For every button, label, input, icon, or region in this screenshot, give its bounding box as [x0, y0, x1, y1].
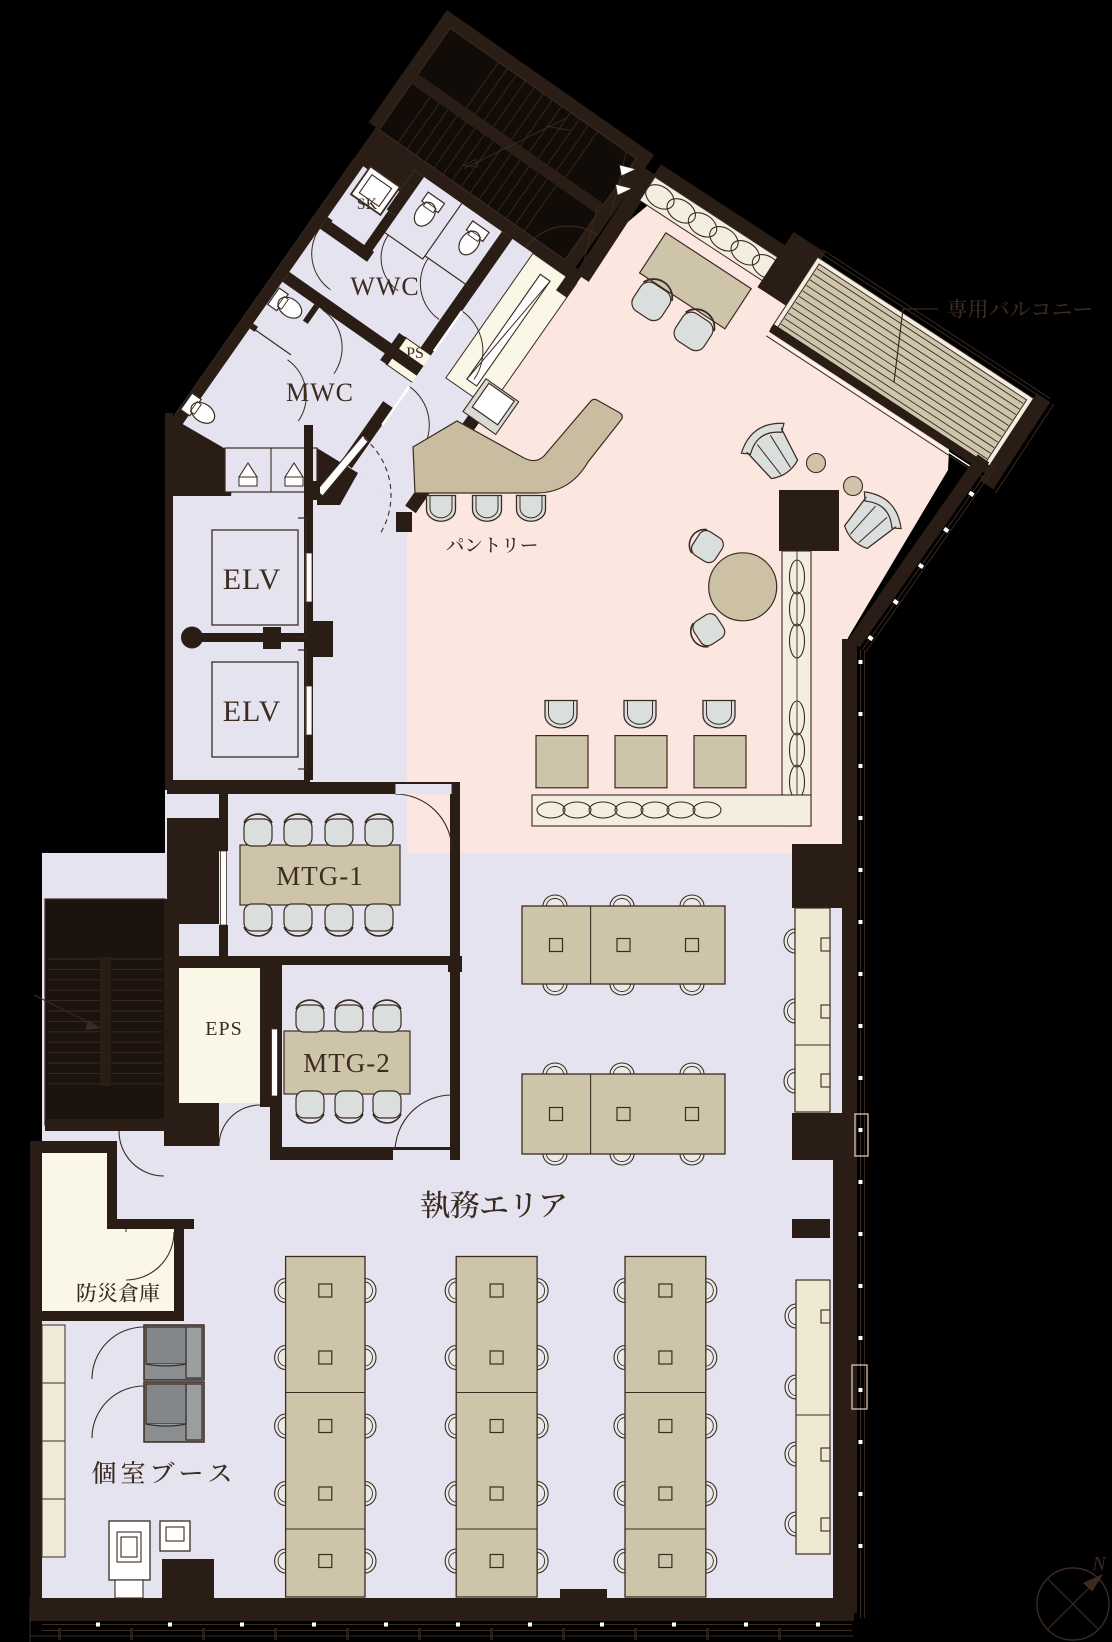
svg-text:EPS: EPS	[205, 1018, 242, 1040]
svg-text:N: N	[1091, 1553, 1107, 1575]
svg-text:MTG-2: MTG-2	[303, 1048, 391, 1078]
svg-text:WWC: WWC	[350, 272, 419, 301]
svg-text:ELV: ELV	[223, 695, 282, 728]
svg-text:MTG-1: MTG-1	[276, 861, 364, 891]
svg-text:SK: SK	[357, 196, 378, 213]
svg-text:PS: PS	[406, 345, 424, 362]
svg-text:MWC: MWC	[286, 378, 354, 407]
svg-text:ELV: ELV	[223, 563, 282, 596]
